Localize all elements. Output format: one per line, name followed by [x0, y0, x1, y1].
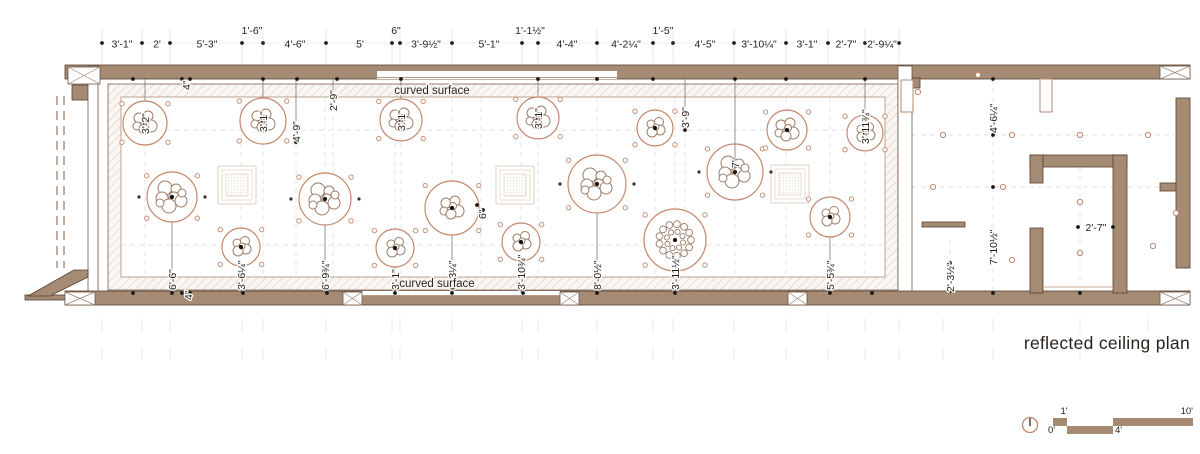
fixture-satellite [633, 109, 637, 113]
lamp-circle [741, 164, 749, 172]
ref-dot [991, 77, 995, 81]
fixture-satellite [372, 228, 376, 232]
ref-dot [188, 77, 192, 81]
mullion [1040, 79, 1052, 112]
fixture-center-dot [450, 206, 454, 210]
fixture-satellite [806, 233, 810, 237]
dim-4-6-1-4: 4'-6¼" [988, 103, 1000, 133]
fixture-satellite [477, 228, 481, 232]
fixture-satellite [372, 263, 376, 267]
dim-dot [140, 41, 144, 45]
fixture-satellite [843, 114, 847, 118]
fixture-satellite [623, 158, 627, 162]
dim-dot [324, 41, 328, 45]
dim-6in: 6" [477, 209, 489, 219]
ceiling-marker [915, 89, 920, 94]
fixture-center-dot [519, 240, 523, 244]
fixture-center-dot [323, 197, 327, 201]
dim-dot [732, 41, 736, 45]
lamp-circle [603, 176, 611, 184]
ceiling-marker [1009, 132, 1014, 137]
ceiling-marker [940, 132, 945, 137]
lamp-circle [587, 186, 601, 200]
north-indicator-icon [1023, 418, 1038, 433]
fixture-satellite [423, 228, 427, 232]
dim-label: 2'-7" [836, 39, 857, 51]
dim-4in-top: 4" [181, 80, 193, 90]
ceiling-marker [1145, 132, 1150, 137]
dim-label: 4'-5" [695, 39, 716, 51]
wall [1176, 98, 1190, 268]
ref-dot [991, 185, 995, 189]
diffuser-panel [771, 165, 809, 203]
ref-dot [828, 291, 832, 295]
drawing-title: reflected ceiling plan [1024, 333, 1190, 353]
fixture-satellite [514, 134, 518, 138]
dim-label: 3'-1" [112, 39, 133, 51]
fixture-dim-label: 3'-1" [396, 110, 408, 131]
fixture-center-dot [239, 245, 243, 249]
lamp-circle [725, 174, 739, 188]
fixture-satellite [633, 143, 637, 147]
fixture-satellite [643, 263, 647, 267]
wall [1113, 155, 1127, 293]
curved-surface-label-top: curved surface [394, 85, 469, 97]
dim-3-9: 3'-9" [680, 107, 692, 128]
ref-dot [170, 291, 174, 295]
dim-label: 1'-6" [242, 25, 263, 37]
scale-label-10ft: 10' [1181, 406, 1194, 417]
fixture-dim-label: 3'-1" [533, 108, 545, 129]
dim-dot [450, 41, 454, 45]
fixture-satellite [558, 97, 562, 101]
fixture-satellite [413, 263, 417, 267]
fixture-satellite [423, 183, 427, 187]
ref-dot [870, 291, 874, 295]
ref-dot [595, 291, 599, 295]
fixture-satellite [539, 222, 543, 226]
ceiling-marker [1009, 257, 1014, 262]
wall [65, 65, 1190, 79]
fixture-satellite [498, 257, 502, 261]
ref-dot [325, 291, 329, 295]
dim-4-9: 4'-9" [291, 121, 303, 142]
lamp-circle [331, 191, 339, 199]
dim-dot [536, 41, 540, 45]
wall [65, 291, 1190, 305]
ref-dot [521, 291, 525, 295]
dim-label: 4'-6" [285, 39, 306, 51]
ref-dot [536, 77, 540, 81]
reflected-ceiling-plan-drawing: 3'-1"2'5'-3"4'-6"5'3'-9½"5'-1"4'-4"4'-2¼… [0, 0, 1200, 454]
dim-label: 1'-5" [653, 25, 674, 37]
ref-dot [261, 77, 265, 81]
fixture-center-dot [785, 128, 789, 132]
fixture-satellite [705, 193, 709, 197]
wall [922, 222, 965, 227]
scale-label-1ft: 1' [1060, 406, 1067, 417]
fixture-satellite [623, 206, 627, 210]
ceiling-marker [1150, 243, 1155, 248]
fixture-satellite [195, 216, 199, 220]
dim-label: 5'-1" [479, 39, 500, 51]
fixture-dim-label: 8'-0½" [592, 260, 604, 290]
fixture-satellite [843, 148, 847, 152]
column-box [560, 292, 579, 305]
column-box [68, 67, 100, 84]
fixture-dim-label: 3'-11½" [670, 255, 682, 290]
fixture-satellite [703, 263, 707, 267]
fixture-satellite [883, 148, 887, 152]
ref-dot [399, 77, 403, 81]
scale-bar: 1' 10' 0' 4' [1048, 406, 1193, 436]
dim-dot [671, 41, 675, 45]
fixture-dim-label: 3'-6¼" [236, 260, 248, 290]
ceiling-plan-canvas: 3'-1"2'5'-3"4'-6"5'3'-9½"5'-1"4'-4"4'-2¼… [0, 0, 1200, 454]
fixture-satellite [566, 206, 570, 210]
lamp-circle [309, 201, 317, 209]
fixture-satellite [539, 257, 543, 261]
dim-dot [261, 41, 265, 45]
ref-dot [1078, 291, 1082, 295]
fixture-satellite [806, 110, 810, 114]
fixture-satellite [673, 143, 677, 147]
fixture-satellite [643, 213, 647, 217]
lamp-circle [581, 186, 589, 194]
ref-dot [595, 77, 599, 81]
column-box [1160, 292, 1190, 305]
fixture-satellite [237, 99, 241, 103]
column-box [65, 292, 95, 305]
fixture-satellite [259, 227, 263, 231]
fixture-satellite [166, 140, 170, 144]
dim-label: 2'-9¼" [867, 39, 897, 51]
fixture-satellite [285, 139, 289, 143]
ceiling-marker [975, 72, 980, 77]
fixture-satellite [218, 227, 222, 231]
mullion [901, 80, 913, 112]
lamp-circle [162, 199, 176, 213]
ref-dot [863, 77, 867, 81]
fixture-satellite [377, 99, 381, 103]
dim-2-9: 2'-9" [328, 90, 340, 111]
lamp-circle [781, 131, 791, 141]
dim-label: 4'-2¼" [611, 39, 641, 51]
fixture-dim-label: 6'-9¾" [320, 260, 332, 290]
dim-dot [240, 41, 244, 45]
diffuser-panel [496, 166, 534, 204]
fixture-center-dot [170, 195, 174, 199]
dim-label: 5' [356, 39, 364, 51]
fixture-satellite [237, 139, 241, 143]
ceiling-marker [1077, 199, 1082, 204]
fixture-satellite [377, 136, 381, 140]
fixture-satellite [514, 97, 518, 101]
ref-dot [651, 77, 655, 81]
dim-label: 3'-1" [797, 39, 818, 51]
dim-label: 2' [153, 39, 161, 51]
ref-dot [673, 291, 677, 295]
fixture-satellite [703, 213, 707, 217]
ref-dot [475, 203, 479, 207]
wall [1030, 155, 1127, 167]
wall [72, 85, 88, 100]
fixture-satellite [349, 219, 353, 223]
fixture-satellite [806, 146, 810, 150]
fixture-satellite [806, 197, 810, 201]
fixture-satellite [145, 174, 149, 178]
ref-dot [335, 77, 339, 81]
fixture-center-dot [393, 246, 397, 250]
ceiling-marker [930, 184, 935, 189]
dim-dot [390, 41, 394, 45]
dim-4in-bottom: 4" [183, 290, 195, 300]
fixture-satellite [566, 158, 570, 162]
fixture-dim-label: 3'-11¾" [860, 109, 872, 144]
wall [1030, 228, 1043, 293]
dim-dot [595, 41, 599, 45]
dim-dot [651, 41, 655, 45]
dim-label: 5'-3" [197, 39, 218, 51]
ref-dot [131, 77, 135, 81]
ref-dot [1111, 225, 1115, 229]
column-box [788, 292, 807, 305]
dim-2-3-1-2: 2'-3½" [945, 262, 957, 292]
fixture-dim-label: 3'-1" [258, 111, 270, 132]
fixture-center-dot [673, 238, 677, 242]
fixture-satellite [297, 219, 301, 223]
fixture-satellite [120, 102, 124, 106]
fixture-satellite [849, 197, 853, 201]
curved-surface-label-bottom: curved surface [399, 278, 474, 290]
dim-2-7: 2'-7" [1086, 222, 1107, 234]
fixture-center-dot [828, 215, 832, 219]
fixture-satellite [673, 109, 677, 113]
dim-dot [520, 41, 524, 45]
fixture-satellite [763, 146, 767, 150]
fixture-satellite [120, 140, 124, 144]
fixture-satellite [166, 102, 170, 106]
dim-label: 3'-10¼" [741, 39, 777, 51]
fixture-center-dot [595, 182, 599, 186]
fixture-satellite [477, 183, 481, 187]
dim-label: 1'-1½" [515, 25, 545, 37]
ceiling-marker [1077, 132, 1082, 137]
dim-dot [168, 41, 172, 45]
dim-label: 3'-9½" [411, 39, 441, 51]
ref-dot [393, 291, 397, 295]
fixture-satellite [218, 262, 222, 266]
fixture-satellite [763, 110, 767, 114]
fixture-satellite [760, 193, 764, 197]
lamp-circle [156, 199, 164, 207]
fixture-satellite [285, 99, 289, 103]
dim-dot [784, 41, 788, 45]
scale-label-4ft: 4' [1115, 425, 1122, 436]
ceiling-marker [1173, 210, 1178, 215]
ref-dot [180, 77, 184, 81]
ceiling-marker [1077, 250, 1082, 255]
lamp-circle [315, 201, 329, 215]
dim-dot [398, 41, 402, 45]
fixture-satellite [259, 262, 263, 266]
fixture-satellite [349, 175, 353, 179]
ref-dot [991, 291, 995, 295]
lamp-circle [446, 209, 456, 219]
dim-dot [826, 41, 830, 45]
ref-dot [733, 77, 737, 81]
fixture-satellite [195, 174, 199, 178]
ref-dot [295, 77, 299, 81]
fixture-satellite [849, 233, 853, 237]
ref-dot [450, 291, 454, 295]
lamp-circle [719, 174, 727, 182]
dim-7: 7' [730, 160, 742, 168]
fixture-dim-label: 6'-6" [167, 269, 179, 290]
fixture-satellite [421, 99, 425, 103]
diffuser-panel [218, 166, 256, 204]
fixture-satellite [705, 147, 709, 151]
fixture-dim-label: 5'-5¾" [825, 260, 837, 290]
fixture-satellite [883, 114, 887, 118]
fixture-center-dot [653, 126, 657, 130]
ceiling-marker [1000, 184, 1005, 189]
fixture-satellite [421, 136, 425, 140]
dim-dot [897, 41, 901, 45]
scale-label-0ft: 0' [1048, 425, 1055, 436]
fixture-satellite [145, 216, 149, 220]
fixture-dim-label: 3'-10¾" [516, 254, 528, 290]
wall [1030, 155, 1043, 183]
fixture-dim-label: 3'-2" [140, 113, 152, 134]
ref-dot [131, 291, 135, 295]
ref-dot [1076, 225, 1080, 229]
fixture-satellite [297, 175, 301, 179]
ref-dot [241, 291, 245, 295]
end-wall [88, 66, 98, 291]
dim-7-10-1-2: 7'-10½" [988, 229, 1000, 265]
dim-dot [100, 41, 104, 45]
ref-dot [784, 77, 788, 81]
fixture-satellite [413, 228, 417, 232]
dim-label: 4'-4" [557, 39, 578, 51]
column-box [1160, 66, 1190, 79]
dim-label: 6" [391, 25, 401, 37]
fixture-satellite [558, 134, 562, 138]
lamp-circle [178, 189, 186, 197]
fixture-satellite [498, 222, 502, 226]
column-box [343, 292, 362, 305]
